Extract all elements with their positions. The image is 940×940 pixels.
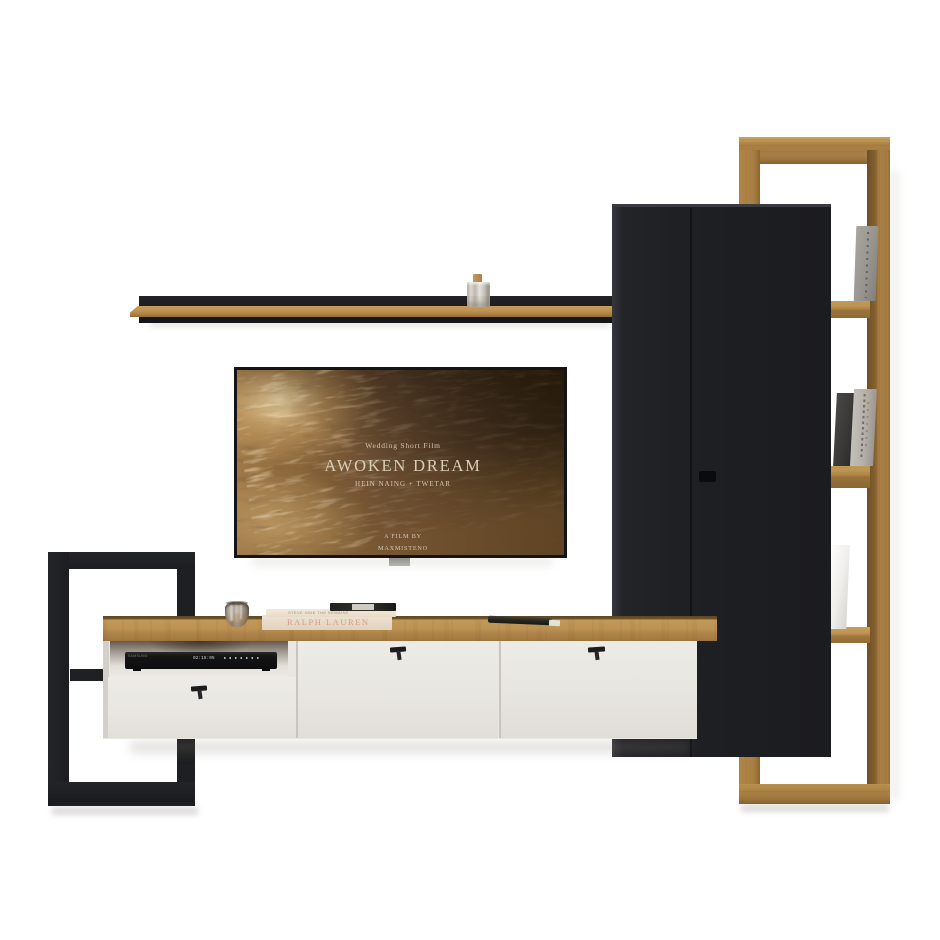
svg-text:A FILM BY: A FILM BY bbox=[384, 533, 422, 540]
svg-text:AWOKEN DREAM: AWOKEN DREAM bbox=[324, 456, 481, 475]
svg-text:HEIN NAING + TWETAR: HEIN NAING + TWETAR bbox=[355, 480, 451, 488]
svg-text:MAXMISTENO: MAXMISTENO bbox=[378, 545, 428, 552]
svg-text:Wedding Short Film: Wedding Short Film bbox=[365, 441, 440, 450]
